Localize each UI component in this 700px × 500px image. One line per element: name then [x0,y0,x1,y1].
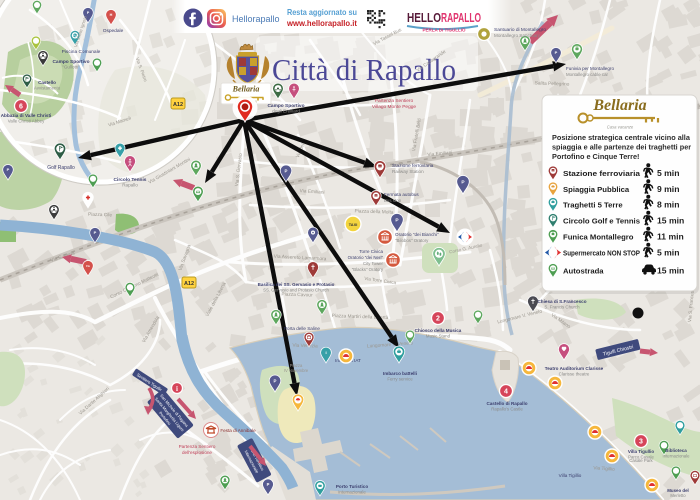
svg-text:Casale Park: Casale Park [629,458,653,463]
svg-text:Via Venezia: Via Venezia [292,343,318,350]
svg-text:Music Stand: Music Stand [426,333,451,338]
svg-text:Clarisse theatre: Clarisse theatre [559,371,590,376]
svg-text:Porta delle Saline: Porta delle Saline [284,326,320,331]
svg-text:Spiaggia Pubblica: Spiaggia Pubblica [563,185,630,194]
svg-text:Bellaria: Bellaria [592,97,646,114]
svg-text:Abbazia di Valle Christi: Abbazia di Valle Christi [1,113,52,118]
svg-text:Autostrada: Autostrada [563,267,604,276]
svg-text:degli Erelliard: degli Erelliard [272,109,300,114]
svg-text:Teatro Auditorium Clarisse: Teatro Auditorium Clarisse [545,366,604,371]
svg-text:P: P [7,167,10,172]
svg-text:6: 6 [19,104,23,111]
svg-text:RAPALLO: RAPALLO [441,10,481,25]
svg-text:SS. Gervasio and Protasio Chur: SS. Gervasio and Protasio Church [263,287,329,292]
svg-text:Montallegro Sanctuary: Montallegro Sanctuary [494,33,541,38]
svg-text:11 min: 11 min [657,232,684,242]
svg-text:dell'esplosione: dell'esplosione [182,450,212,455]
svg-text:Internazionale: Internazionale [663,453,691,458]
svg-text:H: H [110,13,113,17]
svg-text:spiaggia e alle partenze dei t: spiaggia e alle partenze dei traghetti p… [552,143,691,152]
svg-text:A12: A12 [184,281,194,287]
svg-text:Posizione strategica centrale: Posizione strategica centrale vicino all… [552,133,691,142]
svg-text:A12: A12 [173,102,183,108]
svg-text:www.hellorapallo.it: www.hellorapallo.it [286,18,357,28]
svg-text:S. Francis Church: S. Francis Church [544,304,580,309]
svg-text:Villago Monte Pegge: Villago Monte Pegge [372,104,417,110]
svg-text:"Gullotti": "Gullotti" [62,65,80,70]
svg-text:Resta aggiornato su: Resta aggiornato su [287,7,357,17]
svg-text:Torre Civica: Torre Civica [359,249,383,254]
svg-text:P: P [267,482,270,487]
svg-text:Railway Station: Railway Station [392,169,424,174]
svg-text:Biblioteca: Biblioteca [665,448,687,453]
svg-text:8 min: 8 min [657,200,679,210]
svg-text:Funica Montallegro: Funica Montallegro [563,233,634,242]
svg-text:P: P [555,50,558,55]
svg-text:Salita Pellegrino: Salita Pellegrino [535,80,570,87]
svg-text:Ferry service: Ferry service [387,376,413,381]
svg-text:Funivia per Montallegro: Funivia per Montallegro [566,66,614,71]
svg-text:Golf Rapallo: Golf Rapallo [47,165,75,171]
svg-text:15 min: 15 min [657,216,684,226]
svg-text:i: i [176,385,178,393]
svg-text:5 min: 5 min [657,168,679,178]
svg-text:9 min: 9 min [657,184,679,194]
svg-text:Avvistamento: Avvistamento [34,85,61,90]
svg-text:P: P [274,378,277,383]
svg-text:Chiosco della Musica: Chiosco della Musica [415,328,462,333]
svg-text:Città di Rapallo: Città di Rapallo [272,52,456,87]
svg-text:"Bilobos" Oratory: "Bilobos" Oratory [395,238,429,243]
svg-text:Porto Turistico: Porto Turistico [336,484,369,489]
svg-text:Imbarco battelli: Imbarco battelli [383,371,417,376]
svg-text:HELLO: HELLO [407,10,441,25]
svg-text:Rapallo's Castle: Rapallo's Castle [491,406,523,411]
svg-text:Merletto: Merletto [670,493,686,498]
svg-text:3: 3 [639,439,643,446]
svg-text:Piscina Comunale: Piscina Comunale [62,49,101,55]
svg-text:TAXI: TAXI [349,222,358,227]
svg-text:Casa vacanze: Casa vacanze [607,125,634,130]
svg-text:4: 4 [504,389,508,396]
svg-text:IV Novembre: IV Novembre [284,368,309,373]
svg-text:Basilica dei SS. Gervasio e Pr: Basilica dei SS. Gervasio e Protasio [258,282,335,287]
svg-text:Supermercato NON STOP: Supermercato NON STOP [563,249,640,258]
svg-text:Portofino e Cinque Terre!: Portofino e Cinque Terre! [552,152,639,161]
svg-text:Partenza Sentiero: Partenza Sentiero [179,444,216,449]
svg-text:P: P [285,168,288,173]
svg-text:Valle Christi Abbey: Valle Christi Abbey [8,118,45,123]
svg-text:15 min: 15 min [657,266,684,276]
svg-text:Oratorio "dei Bianchi": Oratorio "dei Bianchi" [395,232,439,237]
svg-text:Ospedale: Ospedale [103,28,124,34]
svg-text:Stazione ferroviaria: Stazione ferroviaria [563,169,641,178]
svg-text:Piazza Cavour: Piazza Cavour [281,291,313,298]
svg-text:Villa Tigullio: Villa Tigullio [628,449,655,454]
svg-text:Traghetti 5 Terre: Traghetti 5 Terre [563,201,623,210]
svg-text:Bellaria: Bellaria [232,85,260,94]
svg-text:Piazza Cile: Piazza Cile [88,212,113,219]
svg-text:PERLA DI TIGULLIO: PERLA DI TIGULLIO [422,28,466,33]
svg-text:Oratorio "dei Neri": Oratorio "dei Neri" [348,255,384,260]
svg-text:Bus stop: Bus stop [384,198,402,203]
svg-text:Villa Tigillio: Villa Tigillio [559,473,582,478]
svg-text:Hellorapallo: Hellorapallo [232,14,280,24]
svg-text:Rapallo: Rapallo [122,183,138,188]
svg-text:P: P [94,230,97,235]
svg-text:Fermata autobus: Fermata autobus [384,192,419,197]
svg-text:Circolo Golf e Tennis: Circolo Golf e Tennis [563,217,640,226]
svg-text:"Blacks" Oratory: "Blacks" Oratory [352,267,384,272]
svg-text:5 min: 5 min [657,248,679,258]
svg-text:Castello di Rapallo: Castello di Rapallo [486,401,527,406]
svg-text:Chiesa di S.Francesco: Chiesa di S.Francesco [537,299,586,304]
svg-text:City Tower: City Tower [363,261,384,266]
svg-text:Internazionale: Internazionale [338,489,366,494]
svg-text:2: 2 [436,316,440,323]
svg-text:Partenza Sentiero: Partenza Sentiero [375,98,414,104]
svg-text:Castello: Castello [38,80,56,85]
svg-text:Montallegro cable car: Montallegro cable car [566,72,609,77]
svg-text:Festa di Annibale: Festa di Annibale [220,428,256,433]
